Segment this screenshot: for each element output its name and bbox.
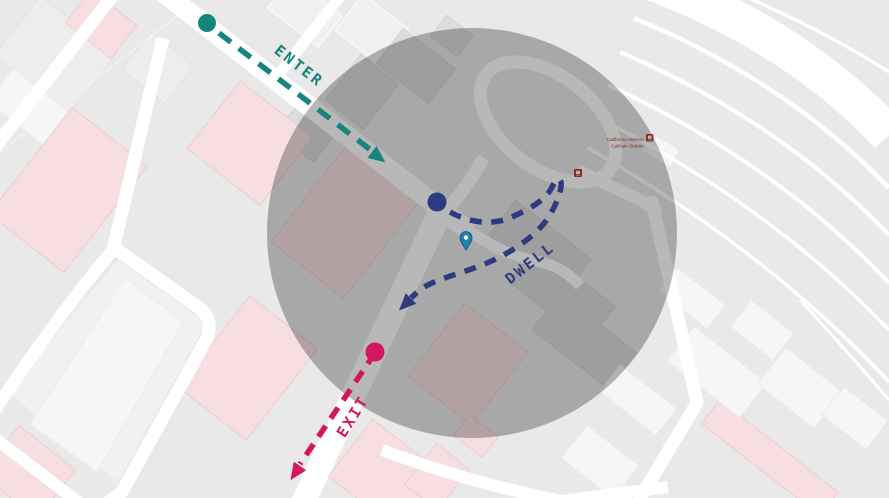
enter-start-dot — [198, 14, 216, 32]
map-svg: California Avenue Caltrain Station ENTER — [0, 0, 889, 498]
focus-circle — [267, 28, 677, 438]
dwell-start-dot — [428, 193, 447, 212]
map-canvas[interactable]: California Avenue Caltrain Station ENTER — [0, 0, 889, 498]
